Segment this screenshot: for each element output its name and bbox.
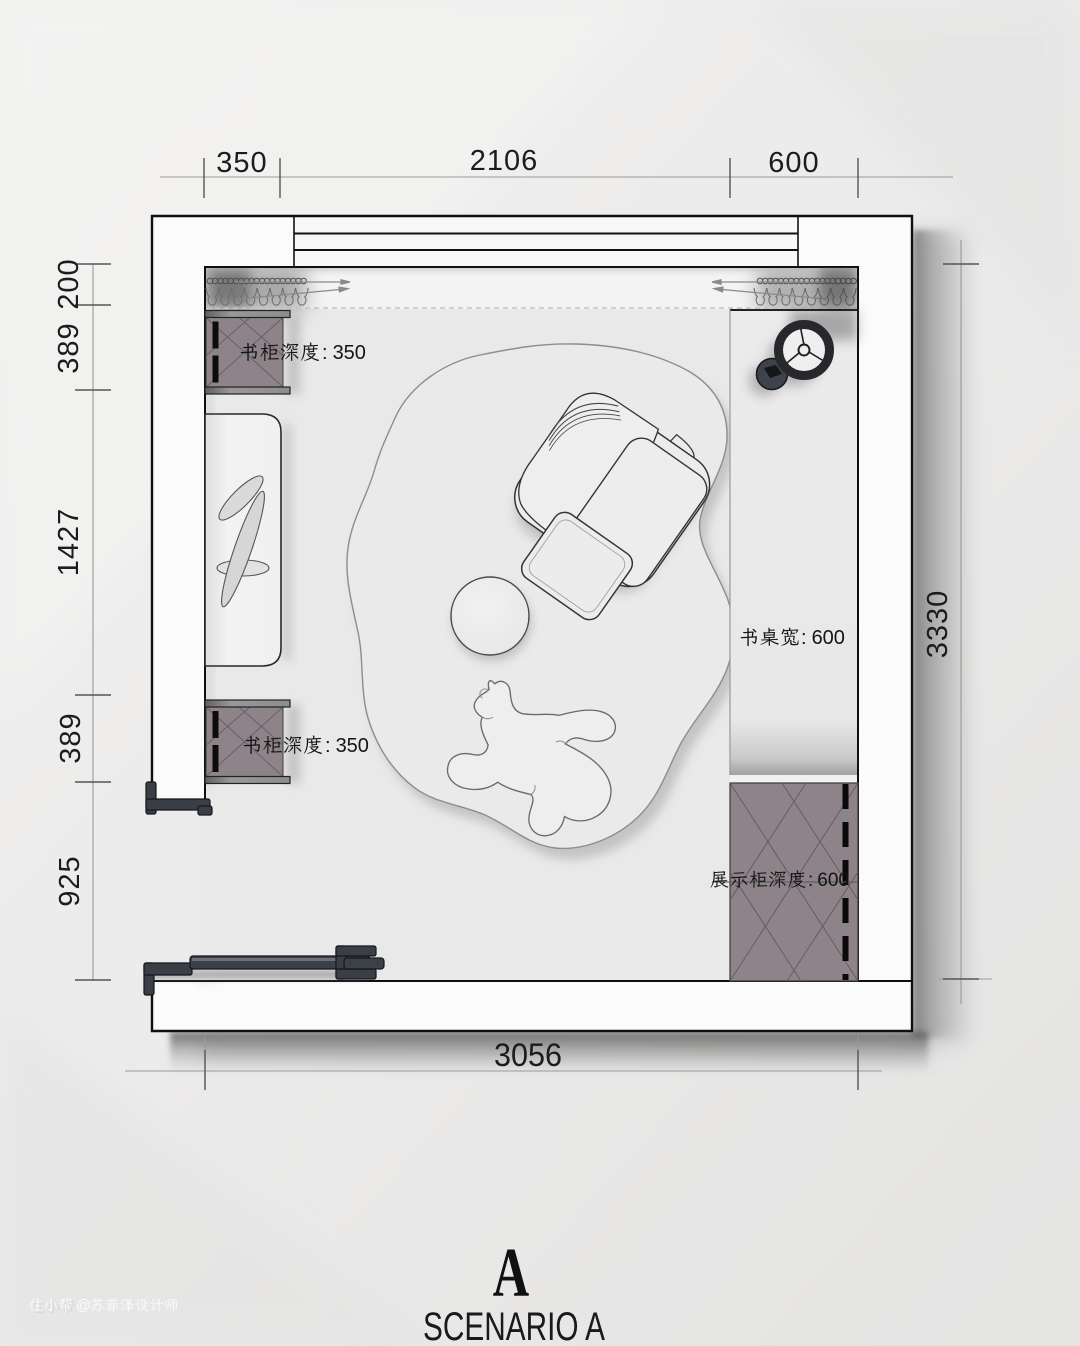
svg-text:350: 350	[216, 147, 267, 179]
svg-text:389: 389	[55, 712, 87, 763]
svg-text:3056: 3056	[494, 1037, 562, 1073]
svg-text:@: @	[76, 1298, 91, 1314]
svg-text:389: 389	[53, 322, 85, 373]
svg-text:3330: 3330	[922, 590, 954, 659]
svg-text:1427: 1427	[53, 508, 85, 577]
svg-text:200: 200	[53, 258, 85, 309]
svg-text:SCENARIO A: SCENARIO A	[423, 1305, 605, 1346]
svg-text:600: 600	[768, 147, 819, 179]
svg-text:A: A	[493, 1235, 529, 1312]
svg-text:2106: 2106	[470, 145, 539, 177]
svg-text:925: 925	[54, 855, 86, 906]
